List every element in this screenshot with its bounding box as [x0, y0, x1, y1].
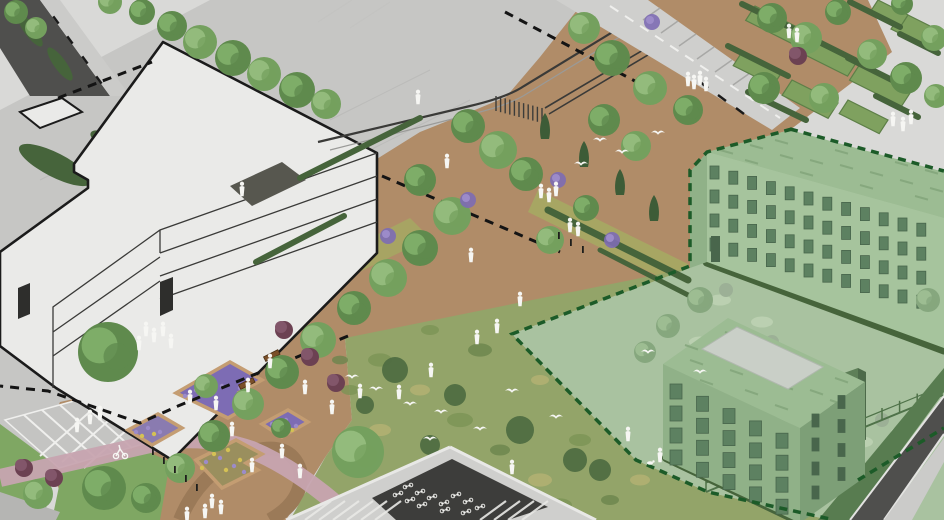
- tree: [183, 25, 217, 59]
- yellow-flower: [152, 432, 156, 436]
- person-figure: [539, 184, 544, 199]
- entrance-door: [160, 277, 173, 316]
- window: [748, 248, 757, 261]
- tree: [621, 131, 651, 161]
- window: [723, 431, 735, 446]
- tree: [332, 426, 384, 478]
- window: [750, 487, 762, 502]
- window: [917, 247, 926, 260]
- purple-flower: [146, 426, 150, 430]
- red-shrub: [301, 348, 319, 366]
- meadow-shrub: [506, 416, 534, 444]
- bollard: [174, 466, 176, 473]
- purple-flower: [183, 394, 187, 398]
- window: [723, 475, 735, 490]
- window: [812, 462, 819, 475]
- person-figure: [416, 90, 421, 105]
- window: [879, 261, 888, 274]
- tree: [157, 11, 187, 41]
- meadow-shrub: [356, 396, 374, 414]
- window: [729, 243, 738, 256]
- window: [898, 242, 907, 255]
- tree: [311, 89, 341, 119]
- meadow-mottle: [528, 473, 552, 486]
- person-figure: [658, 448, 663, 463]
- window: [697, 396, 709, 411]
- window: [879, 213, 888, 226]
- yellow-flower: [226, 448, 230, 452]
- window: [670, 428, 682, 443]
- person-figure: [303, 380, 308, 395]
- purple-flower-clump: [644, 14, 660, 30]
- window: [748, 176, 757, 189]
- window: [804, 264, 813, 277]
- window: [860, 208, 869, 221]
- tinted-tree: [916, 288, 940, 312]
- person-figure: [576, 222, 581, 237]
- tree: [337, 291, 371, 325]
- bollard: [163, 457, 165, 464]
- yellow-flower: [200, 466, 204, 470]
- meadow-shrub: [563, 448, 587, 472]
- window: [785, 259, 794, 272]
- person-figure: [214, 396, 219, 411]
- window: [804, 216, 813, 229]
- red-shrub: [789, 47, 807, 65]
- person-figure: [692, 75, 697, 90]
- red-shrub: [275, 321, 293, 339]
- window: [697, 418, 709, 433]
- window: [776, 433, 788, 448]
- window: [785, 211, 794, 224]
- person-figure: [188, 390, 193, 405]
- person-figure: [230, 422, 235, 437]
- person-figure: [169, 334, 174, 349]
- person-figure: [469, 248, 474, 263]
- meadow-shrub: [589, 459, 611, 481]
- tree: [890, 62, 922, 94]
- tree: [271, 418, 291, 438]
- window: [729, 219, 738, 232]
- person-figure: [704, 77, 709, 92]
- meadow-mottle: [447, 413, 473, 427]
- person-figure: [795, 28, 800, 43]
- tree: [279, 72, 315, 108]
- tree: [4, 0, 28, 24]
- purple-flower: [294, 424, 298, 428]
- window: [710, 214, 719, 227]
- person-figure: [75, 418, 80, 433]
- tree: [404, 164, 436, 196]
- window: [766, 206, 775, 219]
- tree: [402, 230, 438, 266]
- entrance-door: [18, 283, 30, 319]
- window: [838, 468, 845, 481]
- person-figure: [144, 322, 149, 337]
- tree: [131, 483, 161, 513]
- person-figure: [568, 218, 573, 233]
- window: [860, 256, 869, 269]
- window: [860, 280, 869, 293]
- bollard: [570, 239, 572, 246]
- window: [785, 235, 794, 248]
- window: [766, 182, 775, 195]
- tree: [509, 157, 543, 191]
- person-figure: [909, 110, 914, 125]
- bollard: [196, 484, 198, 491]
- window: [766, 254, 775, 267]
- window: [842, 250, 851, 263]
- yellow-flower: [212, 452, 216, 456]
- person-figure: [219, 500, 224, 515]
- meadow-mottle: [630, 475, 650, 486]
- tree: [633, 71, 667, 105]
- bollard: [582, 246, 584, 253]
- person-figure: [88, 410, 93, 425]
- window: [823, 197, 832, 210]
- window: [710, 190, 719, 203]
- tree: [165, 453, 195, 483]
- tree: [573, 195, 599, 221]
- person-figure: [626, 427, 631, 442]
- window: [842, 274, 851, 287]
- tree: [479, 131, 517, 169]
- tree: [757, 3, 787, 33]
- red-shrub: [45, 469, 63, 487]
- tree: [825, 0, 851, 25]
- person-figure: [280, 444, 285, 459]
- person-figure: [510, 460, 515, 475]
- tree: [857, 39, 887, 69]
- window: [812, 486, 819, 499]
- window: [842, 202, 851, 215]
- window: [748, 224, 757, 237]
- entrance-door: [711, 236, 720, 262]
- window: [823, 245, 832, 258]
- purple-flower-clump: [550, 172, 566, 188]
- person-figure: [445, 154, 450, 169]
- person-figure: [185, 507, 190, 520]
- yellow-flower: [238, 458, 242, 462]
- window: [697, 440, 709, 455]
- person-figure: [495, 319, 500, 334]
- person-figure: [152, 328, 157, 343]
- tree: [82, 466, 126, 510]
- red-shrub: [15, 459, 33, 477]
- tree: [369, 259, 407, 297]
- tree: [198, 420, 230, 452]
- tinted-tree: [687, 287, 713, 313]
- person-figure: [518, 292, 523, 307]
- window: [898, 290, 907, 303]
- tree: [194, 374, 218, 398]
- window: [750, 465, 762, 480]
- tree: [809, 83, 839, 113]
- meadow-mottle: [569, 434, 591, 446]
- window: [729, 171, 738, 184]
- meadow-shrub: [382, 357, 408, 383]
- person-figure: [330, 400, 335, 415]
- tree: [568, 12, 600, 44]
- window: [766, 230, 775, 243]
- bollard: [152, 448, 154, 455]
- window: [697, 462, 709, 477]
- window: [917, 271, 926, 284]
- window: [723, 453, 735, 468]
- person-figure: [429, 363, 434, 378]
- person-figure: [475, 330, 480, 345]
- person-figure: [397, 385, 402, 400]
- window: [838, 396, 845, 409]
- person-figure: [240, 182, 245, 197]
- window: [823, 221, 832, 234]
- meadow-mottle: [468, 343, 492, 356]
- person-figure: [137, 336, 142, 351]
- person-figure: [901, 117, 906, 132]
- window: [710, 166, 719, 179]
- purple-flower-clump: [604, 232, 620, 248]
- meadow-mottle: [601, 495, 619, 505]
- window: [750, 443, 762, 458]
- window: [823, 269, 832, 282]
- yellow-flower: [140, 434, 144, 438]
- purple-flower-clump: [460, 192, 476, 208]
- person-figure: [698, 71, 703, 86]
- window: [670, 450, 682, 465]
- window: [729, 195, 738, 208]
- person-figure: [547, 188, 552, 203]
- window: [879, 285, 888, 298]
- meadow-mottle: [490, 445, 510, 456]
- meadow-mottle: [410, 385, 430, 396]
- tree: [129, 0, 155, 25]
- tree: [451, 109, 485, 143]
- purple-flower: [134, 430, 138, 434]
- tree: [536, 226, 564, 254]
- window: [879, 237, 888, 250]
- red-shrub: [327, 374, 345, 392]
- person-figure: [98, 406, 103, 421]
- person-figure: [268, 354, 273, 369]
- tree: [588, 104, 620, 136]
- tree: [25, 17, 47, 39]
- tree: [748, 72, 780, 104]
- person-figure: [891, 112, 896, 127]
- courtyard-blob: [751, 317, 773, 328]
- purple-flower: [232, 464, 236, 468]
- meadow-mottle: [531, 375, 549, 385]
- window: [917, 223, 926, 236]
- window: [898, 266, 907, 279]
- tree: [247, 57, 281, 91]
- person-figure: [161, 322, 166, 337]
- person-figure: [210, 494, 215, 509]
- meadow-mottle: [421, 325, 439, 335]
- tree: [673, 95, 703, 125]
- rendering-canvas: [0, 0, 944, 520]
- window: [748, 200, 757, 213]
- window: [804, 240, 813, 253]
- window: [776, 455, 788, 470]
- tree: [215, 40, 251, 76]
- yellow-flower: [224, 468, 228, 472]
- meadow-shrub: [444, 384, 466, 406]
- site-plan-illustration: [0, 0, 944, 520]
- window: [842, 226, 851, 239]
- purple-flower: [204, 460, 208, 464]
- purple-flower-clump: [380, 228, 396, 244]
- window: [785, 187, 794, 200]
- person-figure: [358, 384, 363, 399]
- person-figure: [250, 458, 255, 473]
- window: [670, 384, 682, 399]
- window: [750, 421, 762, 436]
- window: [804, 192, 813, 205]
- person-figure: [298, 464, 303, 479]
- meadow-mottle: [332, 356, 348, 365]
- window: [838, 444, 845, 457]
- bollard: [558, 232, 560, 239]
- window: [812, 438, 819, 451]
- tree: [78, 322, 138, 382]
- window: [898, 218, 907, 231]
- person-figure: [686, 72, 691, 87]
- window: [860, 232, 869, 245]
- person-figure: [554, 182, 559, 197]
- courtyard-paving-dot: [719, 283, 733, 297]
- purple-flower: [158, 430, 162, 434]
- window: [838, 420, 845, 433]
- tinted-tree: [656, 314, 680, 338]
- window: [776, 477, 788, 492]
- end-wall: [690, 152, 707, 268]
- window: [723, 409, 735, 424]
- window: [670, 406, 682, 421]
- bollard: [185, 475, 187, 482]
- purple-flower: [218, 456, 222, 460]
- tinted-tree: [634, 341, 656, 363]
- person-figure: [203, 504, 208, 519]
- purple-flower: [242, 470, 246, 474]
- person-figure: [787, 24, 792, 39]
- tree: [594, 40, 630, 76]
- window: [812, 414, 819, 427]
- person-figure: [246, 378, 251, 393]
- tree: [232, 388, 264, 420]
